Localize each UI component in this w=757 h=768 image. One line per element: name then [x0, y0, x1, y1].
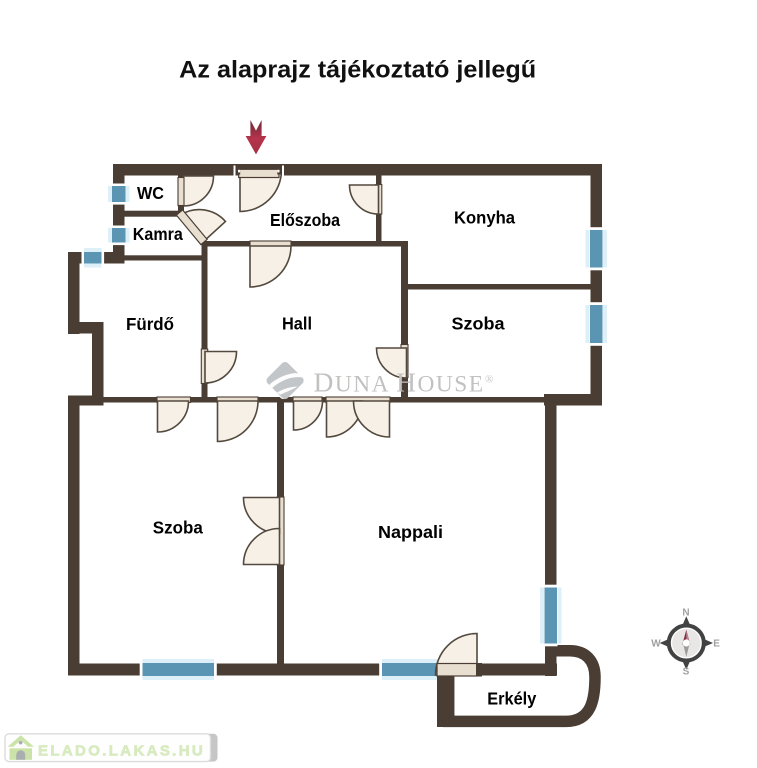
svg-text:E: E: [713, 639, 720, 650]
svg-text:DUNA HOUSE: DUNA HOUSE: [314, 367, 485, 398]
svg-text:WC: WC: [137, 183, 164, 203]
svg-text:Szoba: Szoba: [452, 314, 505, 334]
svg-text:®: ®: [485, 374, 493, 386]
svg-text:W: W: [651, 639, 661, 650]
svg-text:Szoba: Szoba: [153, 518, 203, 538]
svg-text:Előszoba: Előszoba: [270, 210, 340, 230]
svg-text:Hall: Hall: [282, 314, 312, 334]
svg-text:N: N: [682, 608, 689, 619]
svg-text:Konyha: Konyha: [454, 208, 515, 228]
svg-text:Kamra: Kamra: [133, 224, 183, 244]
svg-text:Erkély: Erkély: [487, 689, 536, 709]
svg-text:Fürdő: Fürdő: [126, 314, 174, 334]
svg-text:Az alaprajz tájékoztató jelleg: Az alaprajz tájékoztató jellegű: [179, 56, 536, 83]
svg-text:S: S: [683, 667, 690, 678]
svg-text:Nappali: Nappali: [378, 522, 443, 542]
svg-text:ELADO.LAKAS.HU: ELADO.LAKAS.HU: [38, 743, 205, 760]
